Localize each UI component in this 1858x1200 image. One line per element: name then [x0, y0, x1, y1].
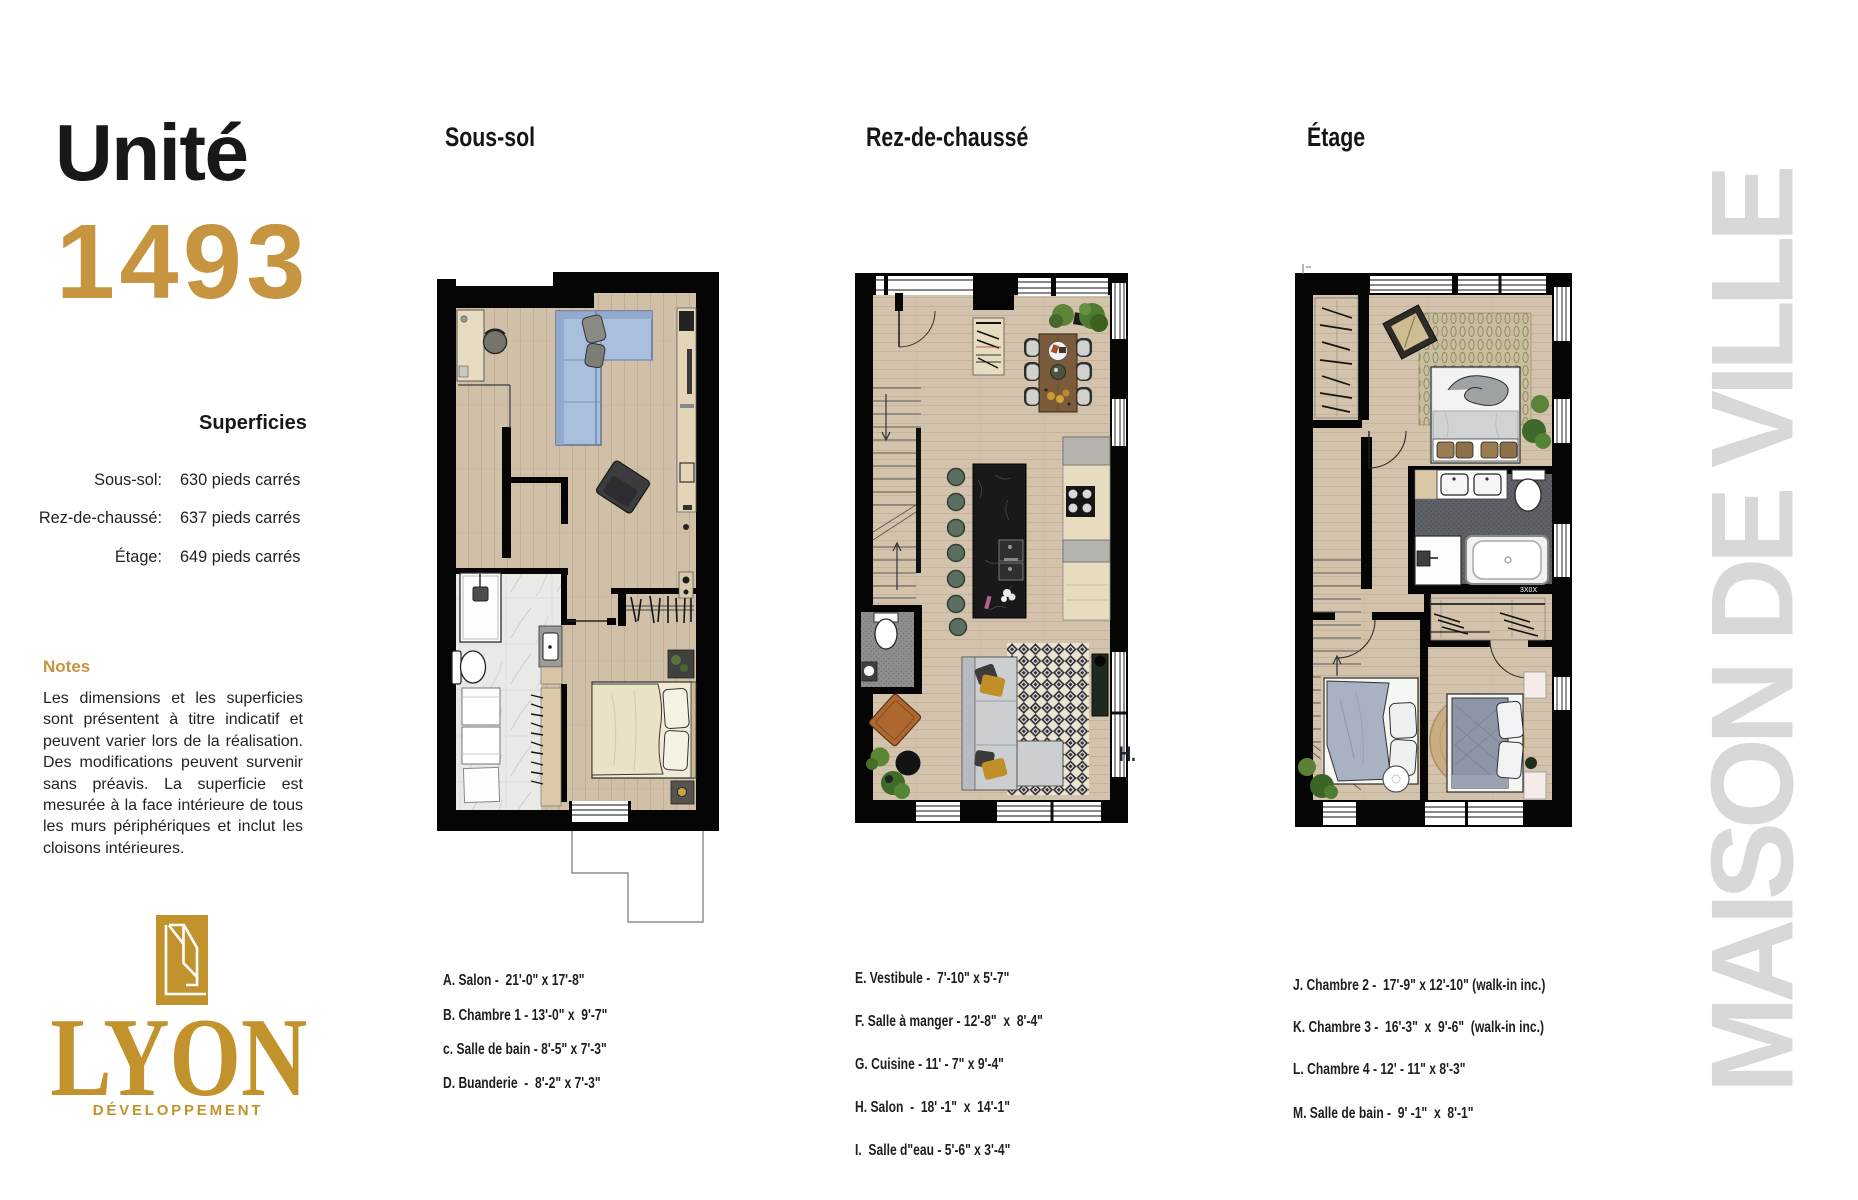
svg-text:3X0X: 3X0X: [1520, 587, 1537, 594]
svg-text:H.: H.: [1119, 743, 1136, 766]
